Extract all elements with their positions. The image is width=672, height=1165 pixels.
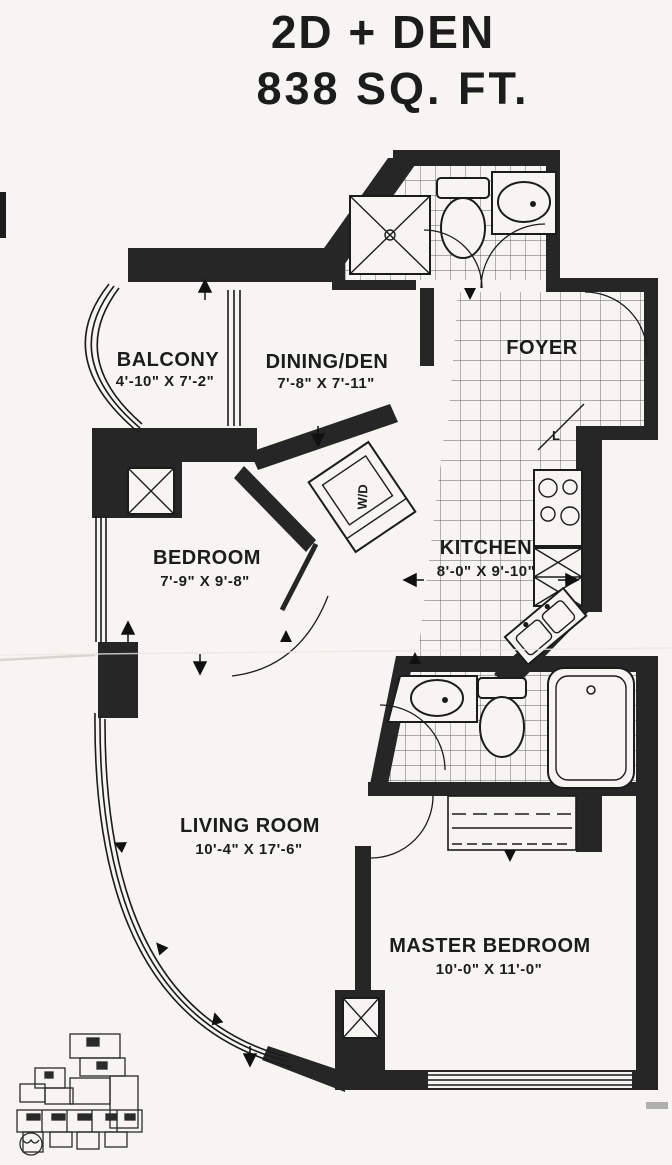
living-room-label: LIVING ROOM 10'-4" X 17'-6" <box>180 815 320 858</box>
svg-text:BEDROOM: BEDROOM <box>153 547 261 569</box>
stove-icon <box>534 470 582 546</box>
svg-text:10'-4" X 17'-6": 10'-4" X 17'-6" <box>195 841 302 858</box>
svg-text:FOYER: FOYER <box>506 337 577 359</box>
living-room-curved-window <box>95 713 292 1067</box>
bedroom-diagonal-wall <box>282 544 316 610</box>
sink-icon <box>492 172 556 234</box>
dining-den-label: DINING/DEN 7'-8" X 7'-11" <box>266 351 389 392</box>
washer-dryer-unit: W/D <box>309 442 416 552</box>
master-door-swing <box>371 796 433 858</box>
svg-text:8'-0" X 9'-10": 8'-0" X 9'-10" <box>437 563 535 580</box>
svg-text:10'-0" X 11'-0": 10'-0" X 11'-0" <box>436 961 542 978</box>
foyer-tiles <box>448 292 644 426</box>
svg-text:KITCHEN: KITCHEN <box>440 537 532 559</box>
washer-dryer-label: W/D <box>355 484 371 510</box>
building-key-map <box>17 1034 142 1155</box>
svg-text:BALCONY: BALCONY <box>117 349 220 371</box>
bathtub-icon <box>548 668 634 788</box>
kitchen-label: KITCHEN 8'-0" X 9'-10" <box>437 537 535 580</box>
shower-stall <box>350 196 430 274</box>
svg-text:DINING/DEN: DINING/DEN <box>266 351 389 373</box>
plan-title: 2D + DEN <box>271 6 495 58</box>
svg-text:MASTER BEDROOM: MASTER BEDROOM <box>389 935 590 957</box>
master-bedroom-label: MASTER BEDROOM 10'-0" X 11'-0" <box>389 935 590 978</box>
bedroom-door-swing <box>232 596 328 676</box>
bedroom-window <box>96 516 106 642</box>
svg-text:4'-10" X 7'-2": 4'-10" X 7'-2" <box>116 373 214 390</box>
master-bedroom-window <box>428 1072 632 1088</box>
master-closet <box>448 796 576 850</box>
balcony-label: BALCONY 4'-10" X 7'-2" <box>116 349 220 390</box>
floor-plan-drawing: 2D + DEN 838 SQ. FT. <box>0 0 672 1165</box>
foyer-label: FOYER <box>506 337 577 359</box>
floor-plan-page: 2D + DEN 838 SQ. FT. <box>0 0 672 1165</box>
balcony-door-glazing <box>228 290 240 426</box>
plan-area: 838 SQ. FT. <box>256 63 529 114</box>
svg-text:LIVING ROOM: LIVING ROOM <box>180 815 320 837</box>
svg-text:7'-8" X 7'-11": 7'-8" X 7'-11" <box>277 375 375 392</box>
bedroom-label: BEDROOM 7'-9" X 9'-8" <box>153 547 261 590</box>
toilet2-icon <box>478 678 526 757</box>
toilet-icon <box>437 178 489 258</box>
svg-text:7'-9" X 9'-8": 7'-9" X 9'-8" <box>160 573 250 590</box>
linen-closet-label: L <box>552 428 560 443</box>
vanity-sink-icon <box>388 676 477 722</box>
column-x-box-master <box>343 998 379 1038</box>
column-x-box-bedroom <box>128 468 174 514</box>
